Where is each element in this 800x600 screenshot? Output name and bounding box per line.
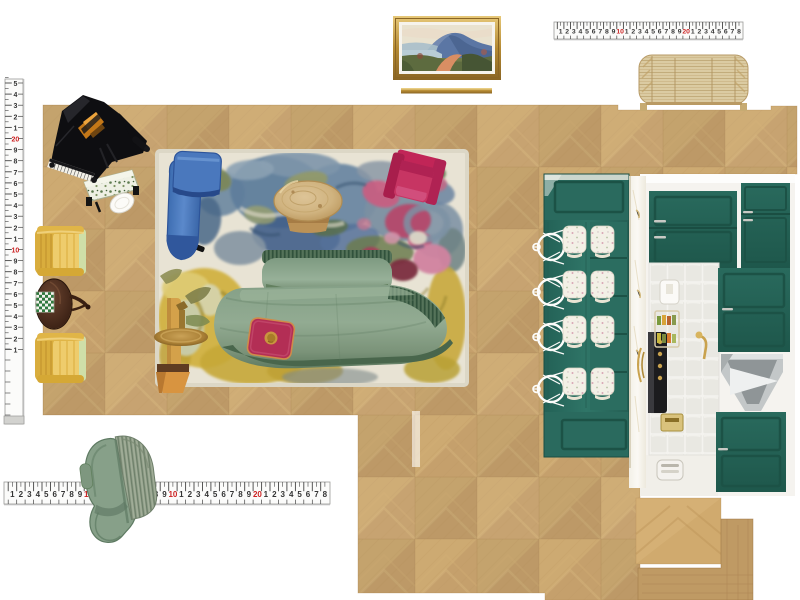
svg-text:5: 5 — [585, 29, 589, 36]
svg-text:8: 8 — [671, 29, 675, 36]
svg-text:4: 4 — [579, 29, 583, 36]
svg-text:1: 1 — [10, 490, 15, 499]
svg-text:2: 2 — [188, 490, 193, 499]
svg-text:7: 7 — [598, 29, 602, 36]
svg-text:8: 8 — [605, 29, 609, 36]
svg-text:8: 8 — [13, 159, 17, 166]
svg-text:4: 4 — [13, 203, 17, 210]
svg-text:8: 8 — [323, 490, 328, 499]
svg-text:7: 7 — [314, 490, 319, 499]
svg-text:8: 8 — [737, 29, 741, 36]
svg-text:4: 4 — [36, 490, 41, 499]
svg-text:6: 6 — [592, 29, 596, 36]
svg-text:5: 5 — [44, 490, 49, 499]
svg-text:4: 4 — [13, 314, 17, 321]
svg-text:7: 7 — [61, 490, 66, 499]
svg-text:3: 3 — [638, 29, 642, 36]
svg-text:5: 5 — [13, 81, 17, 88]
svg-text:7: 7 — [731, 29, 735, 36]
svg-text:1: 1 — [13, 125, 17, 132]
svg-text:6: 6 — [52, 490, 57, 499]
svg-text:1: 1 — [691, 29, 695, 36]
svg-text:3: 3 — [196, 490, 201, 499]
svg-text:1: 1 — [264, 490, 269, 499]
svg-text:20: 20 — [682, 29, 690, 36]
svg-text:7: 7 — [13, 281, 17, 288]
svg-text:9: 9 — [13, 148, 17, 155]
svg-text:6: 6 — [658, 29, 662, 36]
svg-text:4: 4 — [204, 490, 209, 499]
svg-text:6: 6 — [221, 490, 226, 499]
svg-text:10: 10 — [12, 248, 20, 255]
svg-text:7: 7 — [230, 490, 235, 499]
svg-text:9: 9 — [78, 490, 83, 499]
svg-text:1: 1 — [559, 29, 563, 36]
svg-text:2: 2 — [698, 29, 702, 36]
svg-text:2: 2 — [13, 114, 17, 121]
svg-text:20: 20 — [253, 490, 262, 499]
svg-text:5: 5 — [13, 192, 17, 199]
svg-text:7: 7 — [664, 29, 668, 36]
svg-text:5: 5 — [297, 490, 302, 499]
svg-text:9: 9 — [13, 259, 17, 266]
svg-text:3: 3 — [280, 490, 285, 499]
svg-text:5: 5 — [13, 303, 17, 310]
svg-text:5: 5 — [213, 490, 218, 499]
svg-text:2: 2 — [272, 490, 277, 499]
svg-text:8: 8 — [13, 270, 17, 277]
svg-text:9: 9 — [678, 29, 682, 36]
svg-text:7: 7 — [13, 170, 17, 177]
svg-text:9: 9 — [612, 29, 616, 36]
svg-text:4: 4 — [289, 490, 294, 499]
svg-text:10: 10 — [168, 490, 177, 499]
svg-text:9: 9 — [162, 490, 167, 499]
svg-text:3: 3 — [13, 325, 17, 332]
svg-text:20: 20 — [12, 137, 20, 144]
svg-text:6: 6 — [306, 490, 311, 499]
svg-text:2: 2 — [13, 336, 17, 343]
svg-text:5: 5 — [651, 29, 655, 36]
svg-text:5: 5 — [717, 29, 721, 36]
svg-text:2: 2 — [19, 490, 24, 499]
svg-text:1: 1 — [13, 347, 17, 354]
svg-text:6: 6 — [13, 181, 17, 188]
svg-text:3: 3 — [704, 29, 708, 36]
svg-text:2: 2 — [13, 225, 17, 232]
svg-text:4: 4 — [13, 92, 17, 99]
svg-text:9: 9 — [247, 490, 252, 499]
svg-text:3: 3 — [13, 103, 17, 110]
svg-text:1: 1 — [13, 236, 17, 243]
svg-text:3: 3 — [572, 29, 576, 36]
svg-text:3: 3 — [27, 490, 32, 499]
svg-text:1: 1 — [179, 490, 184, 499]
svg-text:10: 10 — [616, 29, 624, 36]
svg-text:1: 1 — [625, 29, 629, 36]
svg-text:6: 6 — [724, 29, 728, 36]
svg-text:2: 2 — [565, 29, 569, 36]
svg-text:6: 6 — [13, 292, 17, 299]
svg-text:2: 2 — [631, 29, 635, 36]
svg-text:8: 8 — [69, 490, 74, 499]
svg-text:4: 4 — [645, 29, 649, 36]
svg-text:8: 8 — [238, 490, 243, 499]
svg-text:3: 3 — [13, 214, 17, 221]
svg-text:4: 4 — [711, 29, 715, 36]
